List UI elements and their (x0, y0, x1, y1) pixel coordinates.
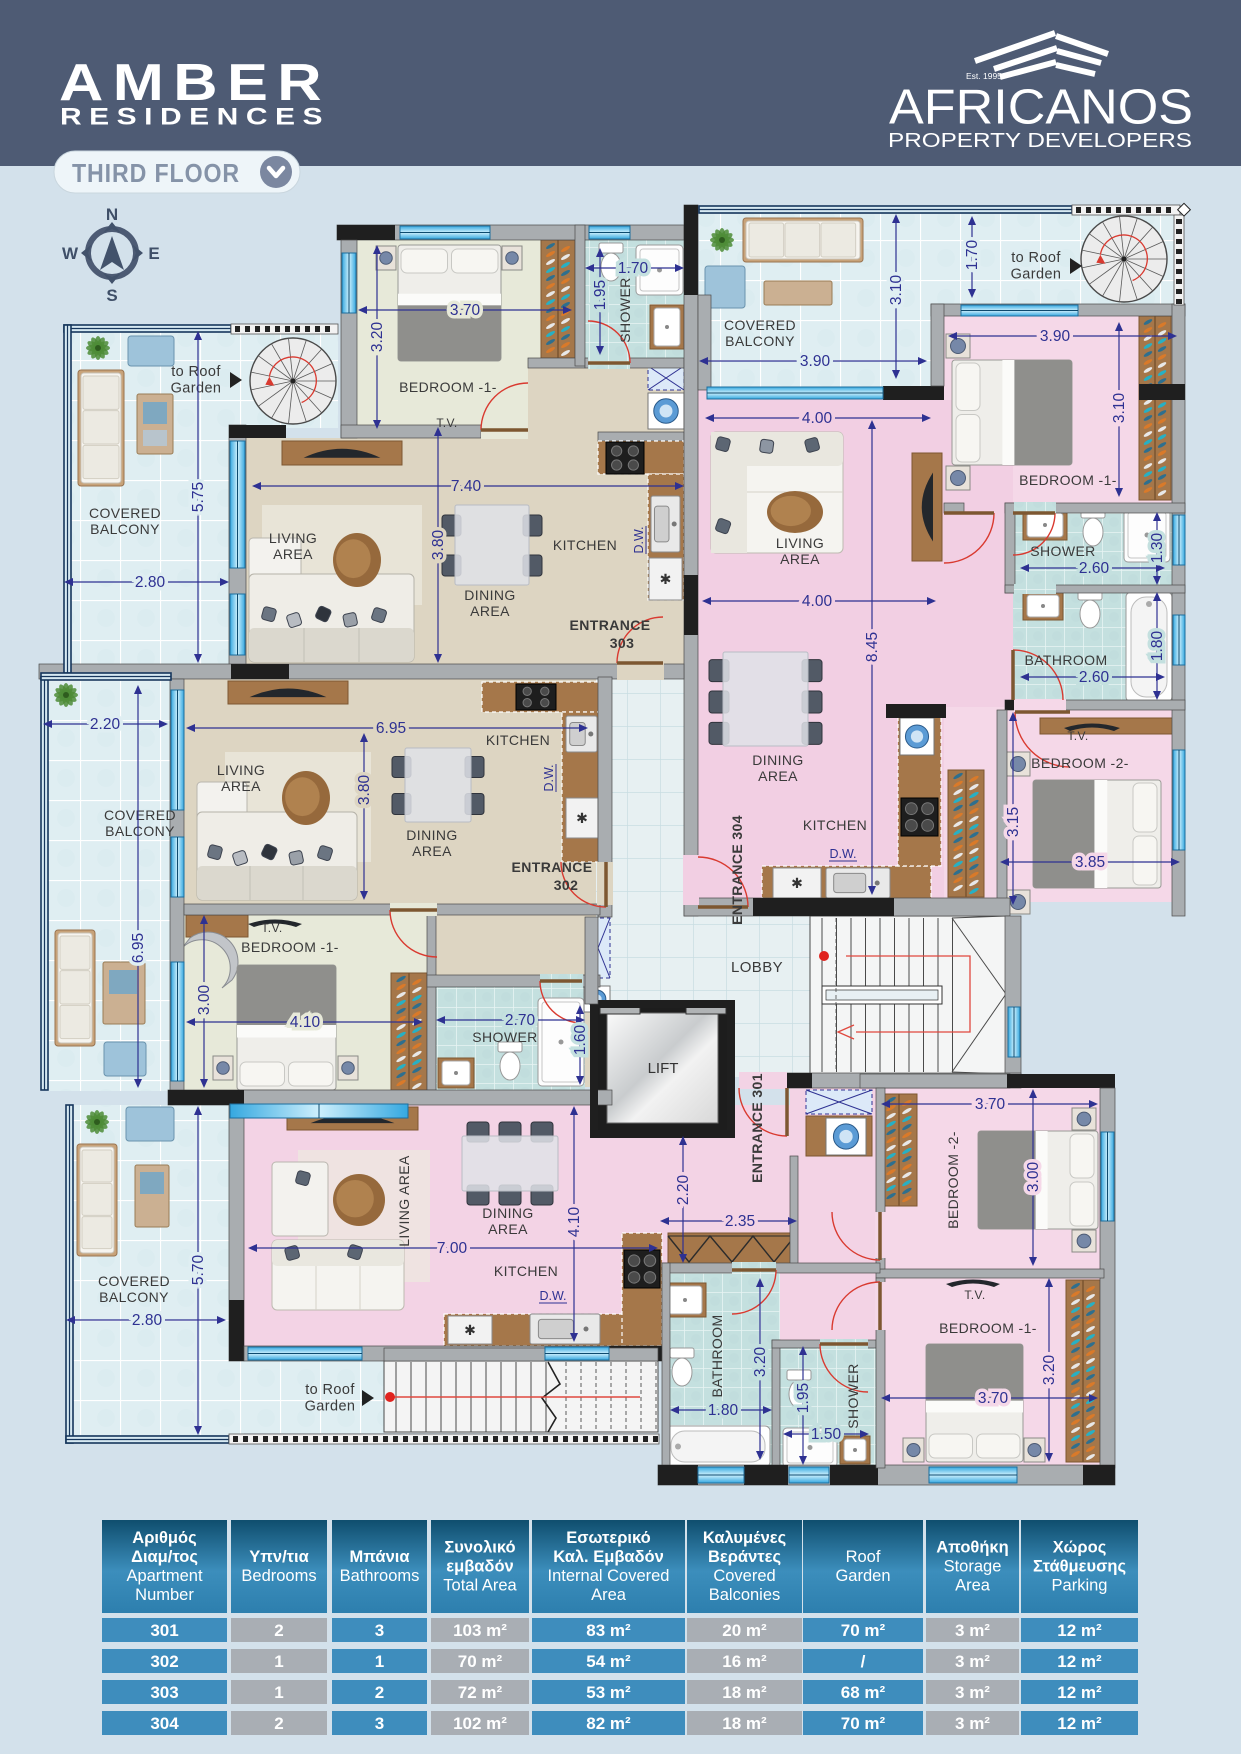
svg-text:3.90: 3.90 (800, 353, 831, 370)
svg-text:BATHROOM: BATHROOM (709, 1314, 725, 1397)
svg-text:AFRICANOS: AFRICANOS (889, 80, 1193, 135)
svg-text:D.W.: D.W. (542, 764, 556, 791)
svg-text:5.70: 5.70 (190, 1255, 207, 1286)
svg-text:Μπάνια: Μπάνια (350, 1548, 410, 1566)
svg-text:5.75: 5.75 (190, 482, 207, 512)
svg-text:3 m²: 3 m² (955, 1621, 990, 1640)
svg-text:Bedrooms: Bedrooms (241, 1567, 316, 1585)
svg-text:70 m²: 70 m² (458, 1652, 503, 1671)
svg-text:3 m²: 3 m² (955, 1652, 990, 1671)
svg-text:3: 3 (375, 1714, 384, 1733)
svg-text:COVEREDBALCONY: COVEREDBALCONY (98, 1273, 170, 1305)
svg-text:1.50: 1.50 (811, 1426, 842, 1443)
svg-text:Αριθμός: Αριθμός (132, 1529, 196, 1547)
svg-text:302: 302 (554, 877, 579, 893)
svg-text:E: E (148, 244, 159, 263)
svg-text:ENTRANCE 304: ENTRANCE 304 (729, 815, 745, 925)
svg-text:16 m²: 16 m² (722, 1652, 767, 1671)
svg-text:KITCHEN: KITCHEN (494, 1263, 558, 1279)
svg-text:3.00: 3.00 (196, 985, 213, 1016)
svg-text:BEDROOM -2-: BEDROOM -2- (1031, 755, 1129, 771)
svg-text:4.10: 4.10 (290, 1014, 321, 1031)
svg-text:303: 303 (610, 635, 635, 651)
svg-text:Διαμ/τος: Διαμ/τος (131, 1548, 198, 1566)
svg-text:SHOWER: SHOWER (472, 1029, 537, 1045)
svg-text:3 m²: 3 m² (955, 1683, 990, 1702)
svg-text:Balconies: Balconies (709, 1586, 781, 1604)
svg-text:3.90: 3.90 (1040, 328, 1071, 345)
svg-text:103 m²: 103 m² (453, 1621, 507, 1640)
svg-text:20 m²: 20 m² (722, 1621, 767, 1640)
svg-text:Στάθμευσης: Στάθμευσης (1033, 1558, 1126, 1576)
svg-text:BEDROOM -1-: BEDROOM -1- (939, 1320, 1037, 1336)
svg-text:54 m²: 54 m² (586, 1652, 631, 1671)
svg-text:✱: ✱ (660, 571, 672, 587)
svg-text:DININGAREA: DININGAREA (406, 827, 457, 859)
svg-text:Garden: Garden (835, 1567, 890, 1585)
svg-text:LOBBY: LOBBY (731, 959, 783, 976)
svg-text:12 m²: 12 m² (1057, 1652, 1102, 1671)
svg-text:D.W.: D.W. (632, 526, 646, 553)
svg-text:to RoofGarden: to RoofGarden (171, 364, 222, 397)
svg-text:1: 1 (375, 1652, 384, 1671)
svg-text:3.70: 3.70 (975, 1096, 1006, 1113)
svg-text:1.70: 1.70 (964, 240, 981, 271)
svg-text:Βεράντες: Βεράντες (708, 1548, 781, 1566)
svg-text:3.15: 3.15 (1005, 807, 1022, 837)
svg-text:2.80: 2.80 (135, 574, 166, 591)
svg-text:3.70: 3.70 (450, 302, 481, 319)
svg-text:1.30: 1.30 (1149, 533, 1166, 564)
svg-text:3.20: 3.20 (369, 322, 386, 353)
svg-text:Apartment: Apartment (126, 1567, 203, 1585)
svg-text:3.70: 3.70 (978, 1390, 1009, 1407)
svg-text:1.80: 1.80 (1149, 631, 1166, 662)
svg-text:3 m²: 3 m² (955, 1714, 990, 1733)
svg-text:Roof: Roof (846, 1548, 881, 1566)
svg-text:6.95: 6.95 (376, 720, 406, 737)
svg-text:LIVINGAREA: LIVINGAREA (776, 535, 824, 567)
svg-text:D.W.: D.W. (539, 1289, 566, 1303)
svg-text:LIVING AREA: LIVING AREA (396, 1155, 412, 1247)
svg-text:68 m²: 68 m² (841, 1683, 886, 1702)
svg-text:3.20: 3.20 (752, 1347, 769, 1378)
svg-text:4.00: 4.00 (802, 593, 833, 610)
svg-text:2: 2 (274, 1714, 283, 1733)
svg-text:LIVINGAREA: LIVINGAREA (217, 762, 265, 794)
svg-text:DININGAREA: DININGAREA (752, 752, 803, 784)
svg-text:53 m²: 53 m² (586, 1683, 631, 1702)
svg-text:8.45: 8.45 (864, 632, 881, 662)
svg-text:Covered: Covered (713, 1567, 775, 1585)
svg-text:✱: ✱ (464, 1322, 476, 1338)
svg-text:KITCHEN: KITCHEN (553, 537, 617, 553)
svg-text:Εσωτερικό: Εσωτερικό (566, 1529, 651, 1547)
svg-text:1.95: 1.95 (795, 1383, 812, 1413)
svg-text:18 m²: 18 m² (722, 1683, 767, 1702)
svg-text:83 m²: 83 m² (586, 1621, 631, 1640)
svg-text:RESIDENCES: RESIDENCES (60, 104, 330, 131)
svg-text:2.35: 2.35 (725, 1213, 755, 1230)
svg-text:302: 302 (150, 1652, 178, 1671)
svg-text:6.95: 6.95 (130, 933, 147, 963)
svg-text:Χώρος: Χώρος (1053, 1539, 1107, 1557)
svg-text:ENTRANCE 301: ENTRANCE 301 (749, 1073, 765, 1183)
svg-text:Storage: Storage (944, 1558, 1002, 1576)
svg-text:D.W.: D.W. (829, 847, 856, 861)
svg-text:3.80: 3.80 (356, 775, 373, 806)
svg-text:ENTRANCE: ENTRANCE (512, 859, 593, 875)
svg-text:N: N (106, 205, 118, 224)
svg-text:18 m²: 18 m² (722, 1714, 767, 1733)
svg-text:BEDROOM -1-: BEDROOM -1- (1019, 472, 1117, 488)
svg-text:Area: Area (591, 1586, 627, 1604)
svg-text:BATHROOM: BATHROOM (1024, 652, 1107, 668)
svg-text:304: 304 (150, 1714, 179, 1733)
svg-text:Συνολικό: Συνολικό (444, 1539, 515, 1557)
svg-text:2.60: 2.60 (1079, 669, 1110, 686)
svg-text:4.10: 4.10 (566, 1207, 583, 1238)
svg-text:7.40: 7.40 (451, 478, 482, 495)
svg-text:Bathrooms: Bathrooms (340, 1567, 420, 1585)
svg-text:70 m²: 70 m² (841, 1714, 886, 1733)
svg-text:/: / (861, 1652, 866, 1671)
svg-text:COVEREDBALCONY: COVEREDBALCONY (104, 807, 176, 839)
svg-text:1.80: 1.80 (708, 1402, 739, 1419)
svg-text:T.V.: T.V. (436, 416, 457, 430)
svg-text:BEDROOM -2-: BEDROOM -2- (945, 1131, 961, 1229)
svg-text:301: 301 (150, 1621, 178, 1640)
svg-text:S: S (106, 286, 117, 305)
svg-text:✱: ✱ (576, 810, 588, 826)
svg-text:LIFT: LIFT (648, 1060, 679, 1077)
svg-text:✱: ✱ (791, 875, 803, 891)
svg-text:72 m²: 72 m² (458, 1683, 503, 1702)
svg-text:Αποθήκη: Αποθήκη (936, 1539, 1008, 1557)
svg-text:Καλ. Εμβαδόν: Καλ. Εμβαδόν (553, 1548, 664, 1566)
svg-text:3: 3 (375, 1621, 384, 1640)
svg-text:εμβαδόν: εμβαδόν (446, 1558, 513, 1576)
svg-text:T.V.: T.V. (964, 1288, 985, 1302)
svg-text:to RoofGarden: to RoofGarden (305, 1382, 356, 1415)
svg-text:W: W (62, 244, 79, 263)
svg-text:3.85: 3.85 (1075, 854, 1105, 871)
svg-text:102 m²: 102 m² (453, 1714, 507, 1733)
svg-text:BEDROOM -1-: BEDROOM -1- (399, 379, 497, 395)
svg-text:2: 2 (375, 1683, 384, 1702)
svg-text:3.20: 3.20 (1041, 1355, 1058, 1386)
svg-text:Καλυμένες: Καλυμένες (703, 1529, 786, 1547)
svg-text:1.70: 1.70 (618, 260, 649, 277)
svg-text:ENTRANCE: ENTRANCE (570, 617, 651, 633)
svg-text:T.V.: T.V. (1067, 729, 1088, 743)
svg-text:12 m²: 12 m² (1057, 1621, 1102, 1640)
svg-text:2.70: 2.70 (505, 1012, 536, 1029)
svg-text:1: 1 (274, 1652, 283, 1671)
svg-text:303: 303 (150, 1683, 178, 1702)
svg-text:82 m²: 82 m² (586, 1714, 631, 1733)
svg-text:3.10: 3.10 (888, 275, 905, 306)
svg-text:Number: Number (135, 1586, 194, 1604)
svg-text:2.80: 2.80 (132, 1312, 163, 1329)
svg-text:SHOWER: SHOWER (617, 277, 633, 342)
svg-text:LIVINGAREA: LIVINGAREA (269, 530, 317, 562)
svg-text:COVEREDBALCONY: COVEREDBALCONY (89, 505, 161, 537)
svg-text:Parking: Parking (1052, 1577, 1108, 1595)
svg-text:70 m²: 70 m² (841, 1621, 886, 1640)
svg-text:Internal Covered: Internal Covered (548, 1567, 670, 1585)
svg-text:Total Area: Total Area (443, 1577, 517, 1595)
svg-text:2.20: 2.20 (90, 716, 121, 733)
svg-text:1.60: 1.60 (572, 1025, 589, 1056)
svg-text:COVEREDBALCONY: COVEREDBALCONY (724, 317, 796, 349)
svg-text:1: 1 (274, 1683, 283, 1702)
svg-text:3.10: 3.10 (1111, 393, 1128, 424)
svg-text:KITCHEN: KITCHEN (803, 817, 867, 833)
svg-text:DININGAREA: DININGAREA (482, 1205, 533, 1237)
svg-text:2: 2 (274, 1621, 283, 1640)
svg-text:THIRD FLOOR: THIRD FLOOR (72, 158, 240, 188)
svg-text:3.80: 3.80 (430, 530, 447, 561)
svg-text:SHOWER: SHOWER (1030, 543, 1095, 559)
svg-text:4.00: 4.00 (802, 410, 833, 427)
svg-text:PROPERTY DEVELOPERS: PROPERTY DEVELOPERS (888, 130, 1192, 152)
svg-text:T.V.: T.V. (261, 921, 282, 935)
svg-text:Υπν/τια: Υπν/τια (249, 1548, 309, 1566)
svg-text:3.00: 3.00 (1025, 1162, 1042, 1193)
svg-text:1.95: 1.95 (592, 280, 609, 310)
svg-text:BEDROOM -1-: BEDROOM -1- (241, 939, 339, 955)
svg-text:Area: Area (955, 1577, 991, 1595)
svg-text:12 m²: 12 m² (1057, 1683, 1102, 1702)
svg-text:7.00: 7.00 (437, 1240, 468, 1257)
svg-text:KITCHEN: KITCHEN (486, 732, 550, 748)
svg-text:12 m²: 12 m² (1057, 1714, 1102, 1733)
svg-text:to RoofGarden: to RoofGarden (1011, 250, 1062, 283)
svg-text:SHOWER: SHOWER (845, 1363, 861, 1428)
svg-text:2.60: 2.60 (1079, 560, 1110, 577)
svg-text:2.20: 2.20 (675, 1175, 692, 1206)
svg-text:DININGAREA: DININGAREA (464, 587, 515, 619)
